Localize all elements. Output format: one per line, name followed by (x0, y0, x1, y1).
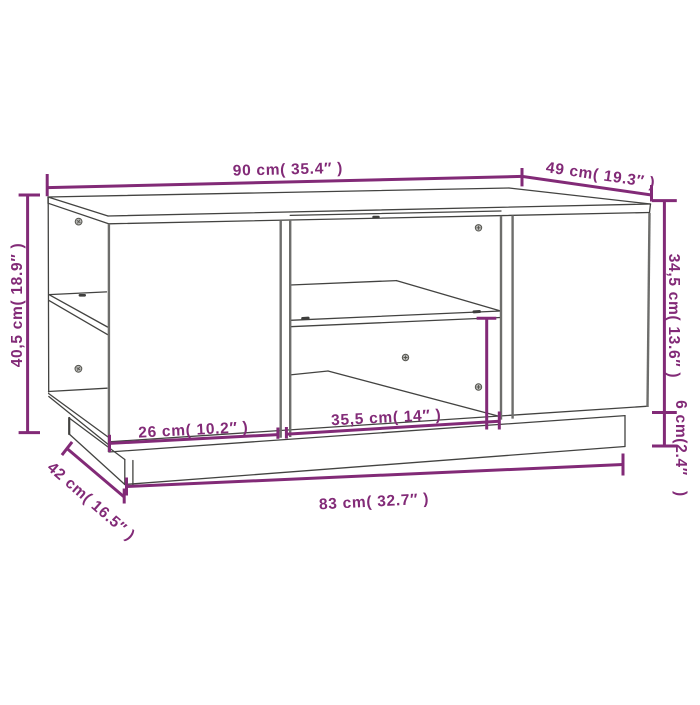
svg-text:90 cm( 35.4″ ): 90 cm( 35.4″ ) (233, 160, 344, 180)
svg-text:34,5 cm( 13.6″ ): 34,5 cm( 13.6″ ) (665, 254, 682, 379)
svg-text:40,5 cm( 18.9″ ): 40,5 cm( 18.9″ ) (9, 243, 26, 368)
svg-text:6 cm(2.4″ ): 6 cm(2.4″ ) (672, 400, 689, 497)
